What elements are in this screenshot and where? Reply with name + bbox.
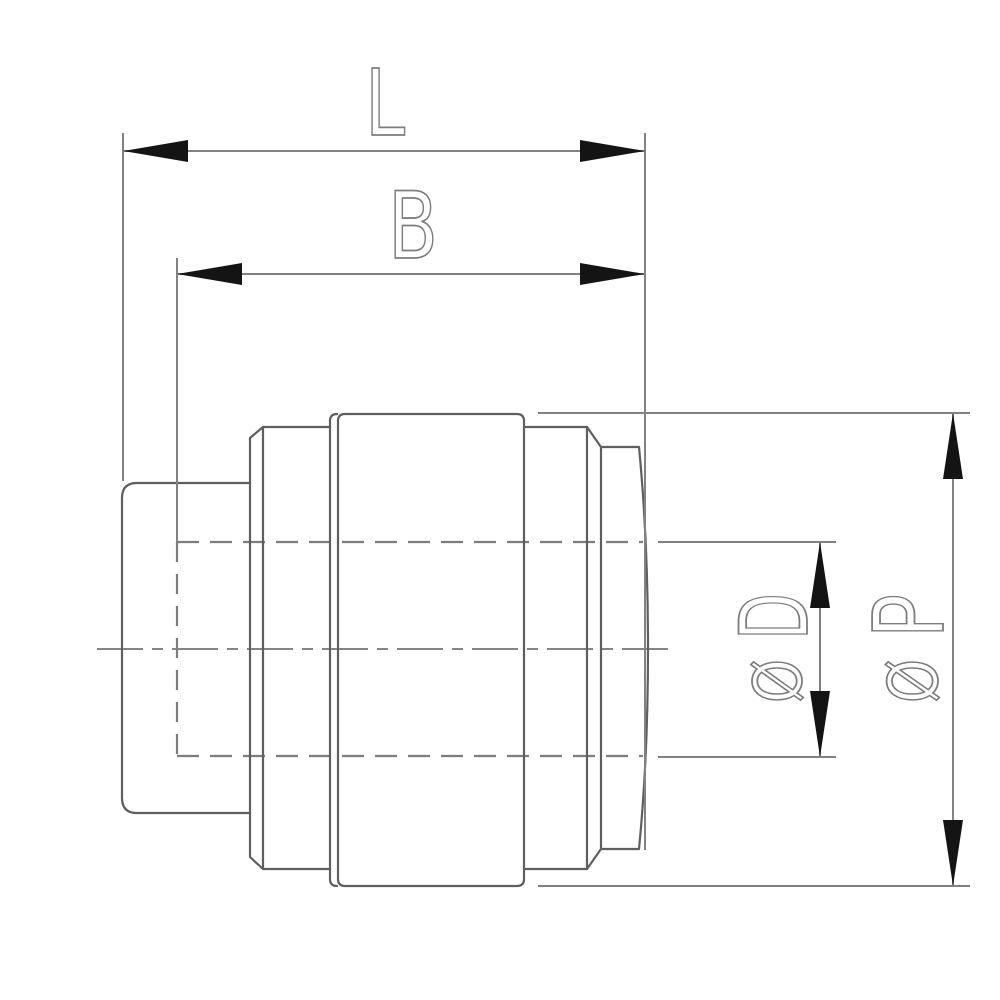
dimension-B: [177, 258, 645, 542]
fitting-dimension-drawing: L B Ø D: [0, 0, 1000, 1000]
technical-drawing-canvas: L B Ø D: [0, 0, 1000, 1000]
dim-B-label: B: [388, 172, 438, 280]
dimension-OD: [658, 542, 836, 757]
dim-L-arrow-right: [580, 140, 645, 162]
dim-B-arrow-right: [580, 263, 645, 285]
dim-OP-letter: P: [853, 594, 966, 638]
dimension-L: [123, 133, 645, 850]
dim-L-label: L: [365, 50, 405, 157]
dim-OD-diameter-symbol: Ø: [740, 659, 817, 703]
dim-OD-letter: D: [721, 593, 830, 640]
dim-OP-arrow-down: [943, 820, 963, 886]
dim-OP-arrow-up: [943, 413, 963, 479]
dim-OP-diameter-symbol: Ø: [875, 659, 954, 703]
dim-L-arrow-left: [123, 140, 188, 162]
dim-B-arrow-left: [177, 263, 242, 285]
